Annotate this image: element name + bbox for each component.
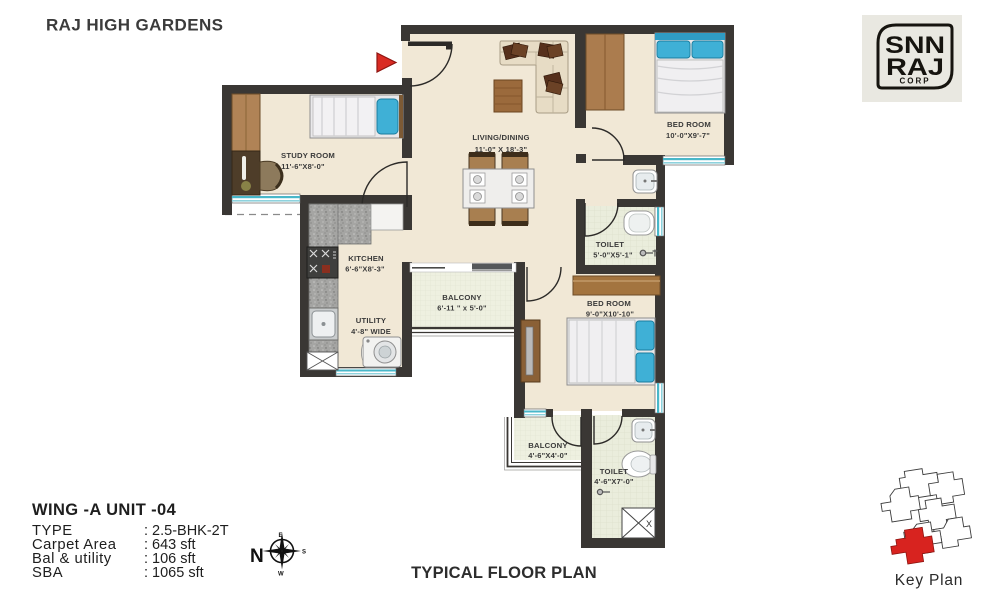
svg-text:LIVING/DINING: LIVING/DINING [472, 133, 529, 142]
svg-text:5'-0"X5'-1": 5'-0"X5'-1" [593, 251, 633, 260]
svg-text:CORP: CORP [899, 77, 930, 86]
svg-text:: 1065 sft: : 1065 sft [144, 565, 204, 581]
svg-text:E: E [279, 533, 283, 539]
svg-text:11'-6"X8'-0": 11'-6"X8'-0" [281, 162, 325, 171]
svg-text:X: X [646, 519, 652, 529]
svg-text:4'-8" WIDE: 4'-8" WIDE [351, 327, 391, 336]
svg-text:W: W [278, 572, 284, 578]
svg-text:9'-0"X10'-10": 9'-0"X10'-10" [586, 310, 635, 319]
svg-text:Key Plan: Key Plan [895, 572, 963, 589]
svg-text:RAJ HIGH GARDENS: RAJ HIGH GARDENS [46, 16, 223, 35]
svg-text:TYPICAL FLOOR PLAN: TYPICAL FLOOR PLAN [411, 564, 597, 582]
svg-text:BALCONY: BALCONY [442, 293, 481, 302]
svg-text:S: S [302, 550, 306, 556]
svg-text:TOILET: TOILET [600, 467, 628, 476]
svg-text:TOILET: TOILET [596, 240, 624, 249]
svg-text:STUDY ROOM: STUDY ROOM [281, 151, 335, 160]
svg-text:6'-11 " x 5'-0": 6'-11 " x 5'-0" [437, 304, 487, 313]
svg-text:BALCONY: BALCONY [528, 441, 567, 450]
svg-text:10'-0"X9'-7": 10'-0"X9'-7" [666, 131, 710, 140]
svg-text:N: N [250, 546, 264, 567]
svg-text:BED ROOM: BED ROOM [587, 299, 631, 308]
svg-text:SBA: SBA [32, 565, 63, 581]
svg-text:BED ROOM: BED ROOM [667, 120, 711, 129]
svg-text:4'-6"X4'-0": 4'-6"X4'-0" [528, 451, 568, 460]
svg-text:KITCHEN: KITCHEN [348, 254, 384, 263]
svg-text:UTILITY: UTILITY [356, 316, 386, 325]
svg-text:4'-6"X7'-0": 4'-6"X7'-0" [594, 477, 634, 486]
svg-text:WING -A UNIT -04: WING -A UNIT -04 [32, 501, 177, 519]
svg-text:6'-6"X8'-3": 6'-6"X8'-3" [345, 265, 385, 274]
svg-text:11'-0" X 18'-3": 11'-0" X 18'-3" [475, 145, 528, 154]
